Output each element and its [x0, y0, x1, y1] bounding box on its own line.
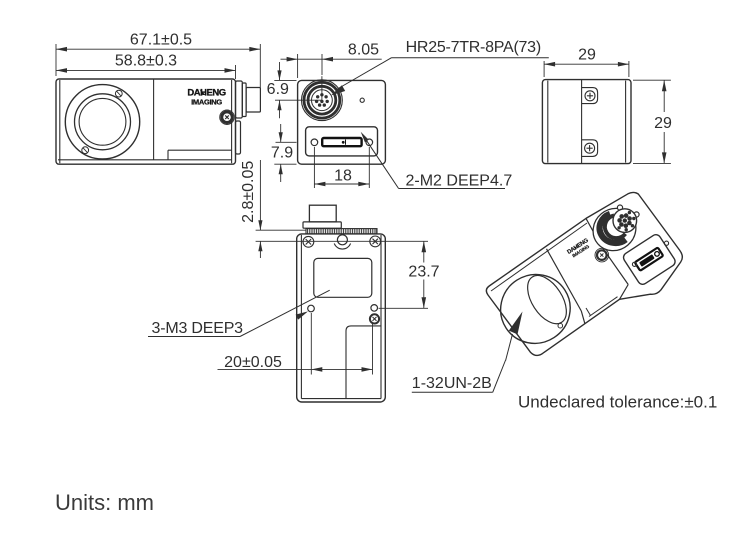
svg-text:Undeclared tolerance:±0.1: Undeclared tolerance:±0.1 [518, 393, 717, 412]
svg-text:2-M2 DEEP4.7: 2-M2 DEEP4.7 [406, 173, 513, 190]
svg-text:67.1±0.5: 67.1±0.5 [130, 32, 192, 49]
svg-text:2.8±0.05: 2.8±0.05 [240, 161, 257, 223]
svg-text:3-M3 DEEP3: 3-M3 DEEP3 [152, 320, 244, 337]
svg-text:Units: mm: Units: mm [55, 490, 154, 515]
svg-text:29: 29 [578, 47, 596, 64]
svg-text:HR25-7TR-8PA(73): HR25-7TR-8PA(73) [406, 39, 541, 56]
svg-text:58.8±0.3: 58.8±0.3 [115, 53, 177, 70]
svg-text:6.9: 6.9 [267, 81, 289, 98]
svg-text:1-32UN-2B: 1-32UN-2B [412, 375, 492, 392]
svg-text:7.9: 7.9 [271, 145, 293, 162]
svg-text:23.7: 23.7 [408, 264, 439, 281]
svg-text:18: 18 [334, 168, 352, 185]
svg-text:29: 29 [654, 115, 672, 132]
svg-text:20±0.05: 20±0.05 [224, 354, 282, 371]
svg-text:8.05: 8.05 [348, 42, 379, 59]
svg-text:IMAGING: IMAGING [191, 98, 222, 107]
